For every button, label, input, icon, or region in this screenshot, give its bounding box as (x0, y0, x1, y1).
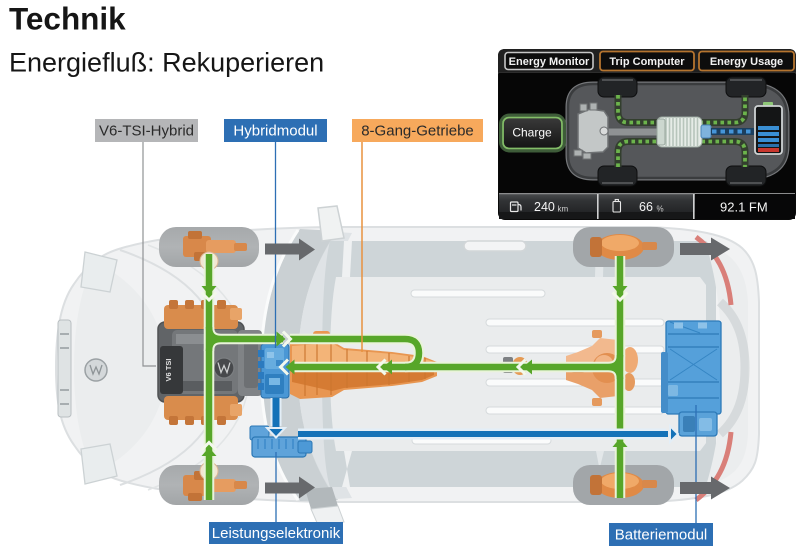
svg-text:Energy Usage: Energy Usage (710, 56, 783, 68)
svg-text:V6 TSI: V6 TSI (164, 359, 173, 382)
svg-text:Charge: Charge (512, 126, 552, 140)
svg-text:Technik: Technik (9, 1, 126, 37)
svg-text:Energy Monitor: Energy Monitor (509, 56, 590, 68)
svg-text:8-Gang-Getriebe: 8-Gang-Getriebe (361, 123, 474, 140)
svg-text:66: 66 (639, 200, 653, 214)
svg-text:V6-TSI-Hybrid: V6-TSI-Hybrid (99, 123, 194, 140)
svg-text:km: km (558, 205, 569, 214)
svg-text:Trip Computer: Trip Computer (609, 56, 685, 68)
svg-text:92.1 FM: 92.1 FM (720, 200, 768, 215)
svg-text:Energiefluß: Rekuperieren: Energiefluß: Rekuperieren (9, 48, 324, 78)
svg-text:Batteriemodul: Batteriemodul (615, 527, 708, 544)
svg-text:240: 240 (534, 200, 555, 214)
svg-text:%: % (657, 205, 664, 214)
svg-text:Hybridmodul: Hybridmodul (233, 123, 317, 140)
svg-text:Leistungselektronik: Leistungselektronik (212, 525, 341, 542)
